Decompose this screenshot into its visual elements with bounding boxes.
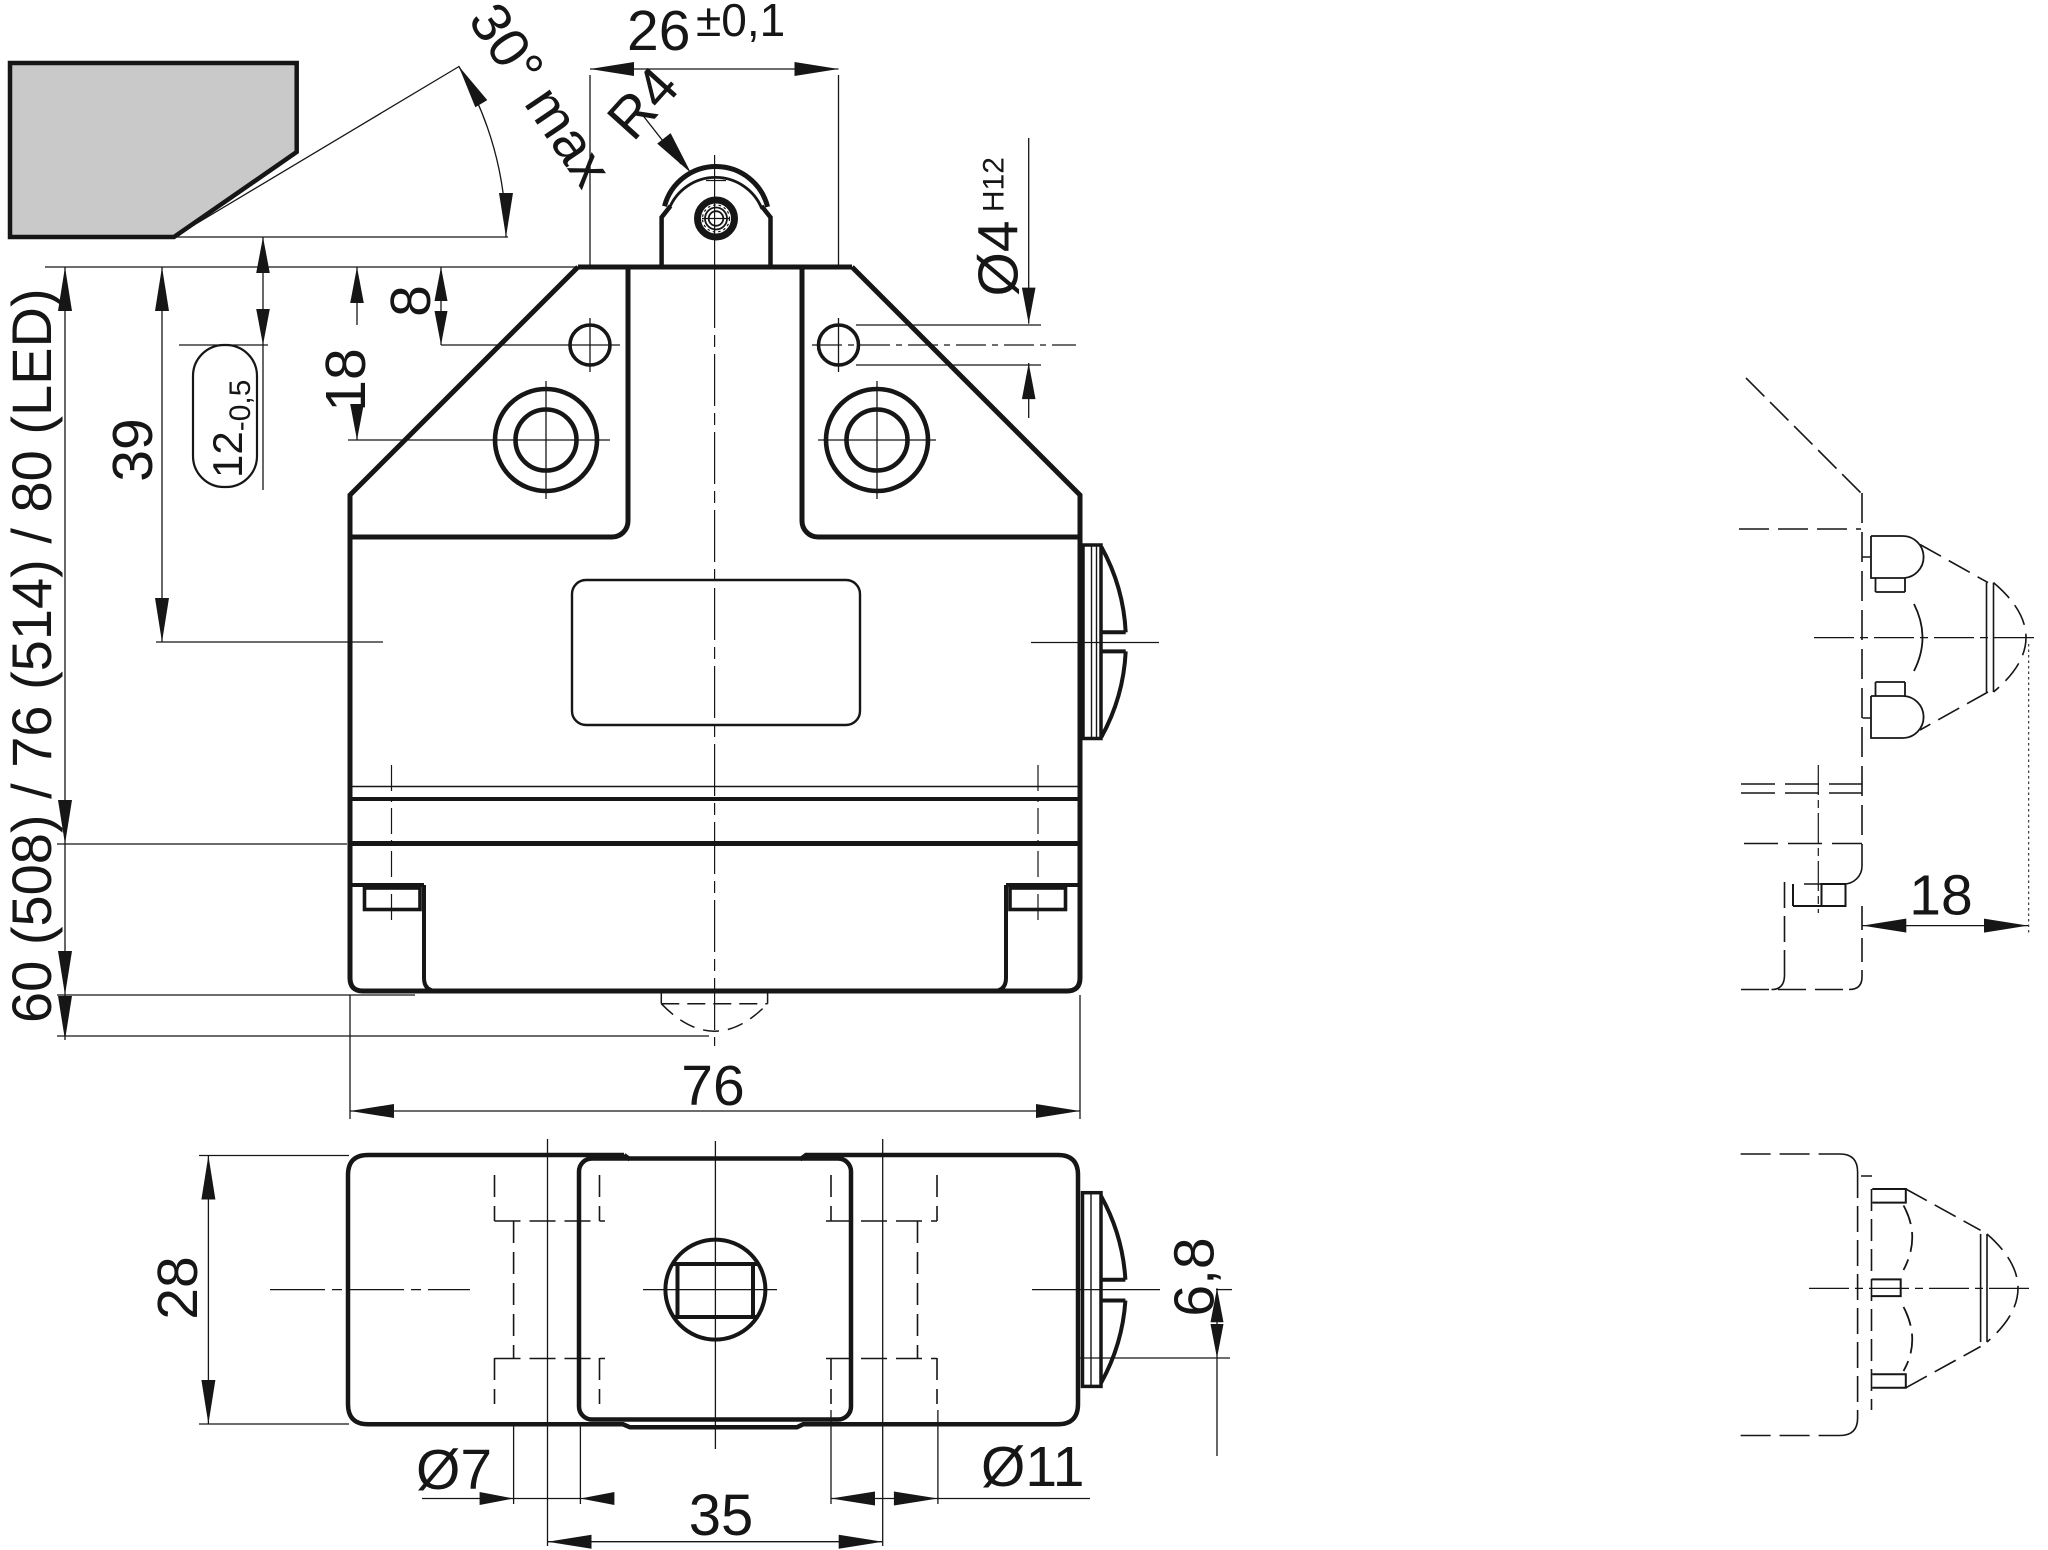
svg-text:6,8: 6,8 [1163, 1237, 1227, 1316]
svg-text:60 (508) / 76 (514) / 80 (LED): 60 (508) / 76 (514) / 80 (LED) [0, 288, 63, 1023]
svg-text:28: 28 [146, 1256, 210, 1319]
svg-text:Ø7: Ø7 [416, 1438, 492, 1502]
svg-text:18: 18 [314, 348, 378, 411]
svg-text:Ø11: Ø11 [981, 1435, 1085, 1499]
svg-text:8: 8 [379, 285, 443, 317]
svg-text:±0,1: ±0,1 [696, 0, 785, 46]
svg-text:35: 35 [689, 1483, 754, 1548]
svg-text:76: 76 [681, 1054, 744, 1118]
svg-text:39: 39 [101, 418, 165, 481]
svg-text:26: 26 [627, 0, 690, 63]
svg-text:18: 18 [1909, 864, 1972, 928]
